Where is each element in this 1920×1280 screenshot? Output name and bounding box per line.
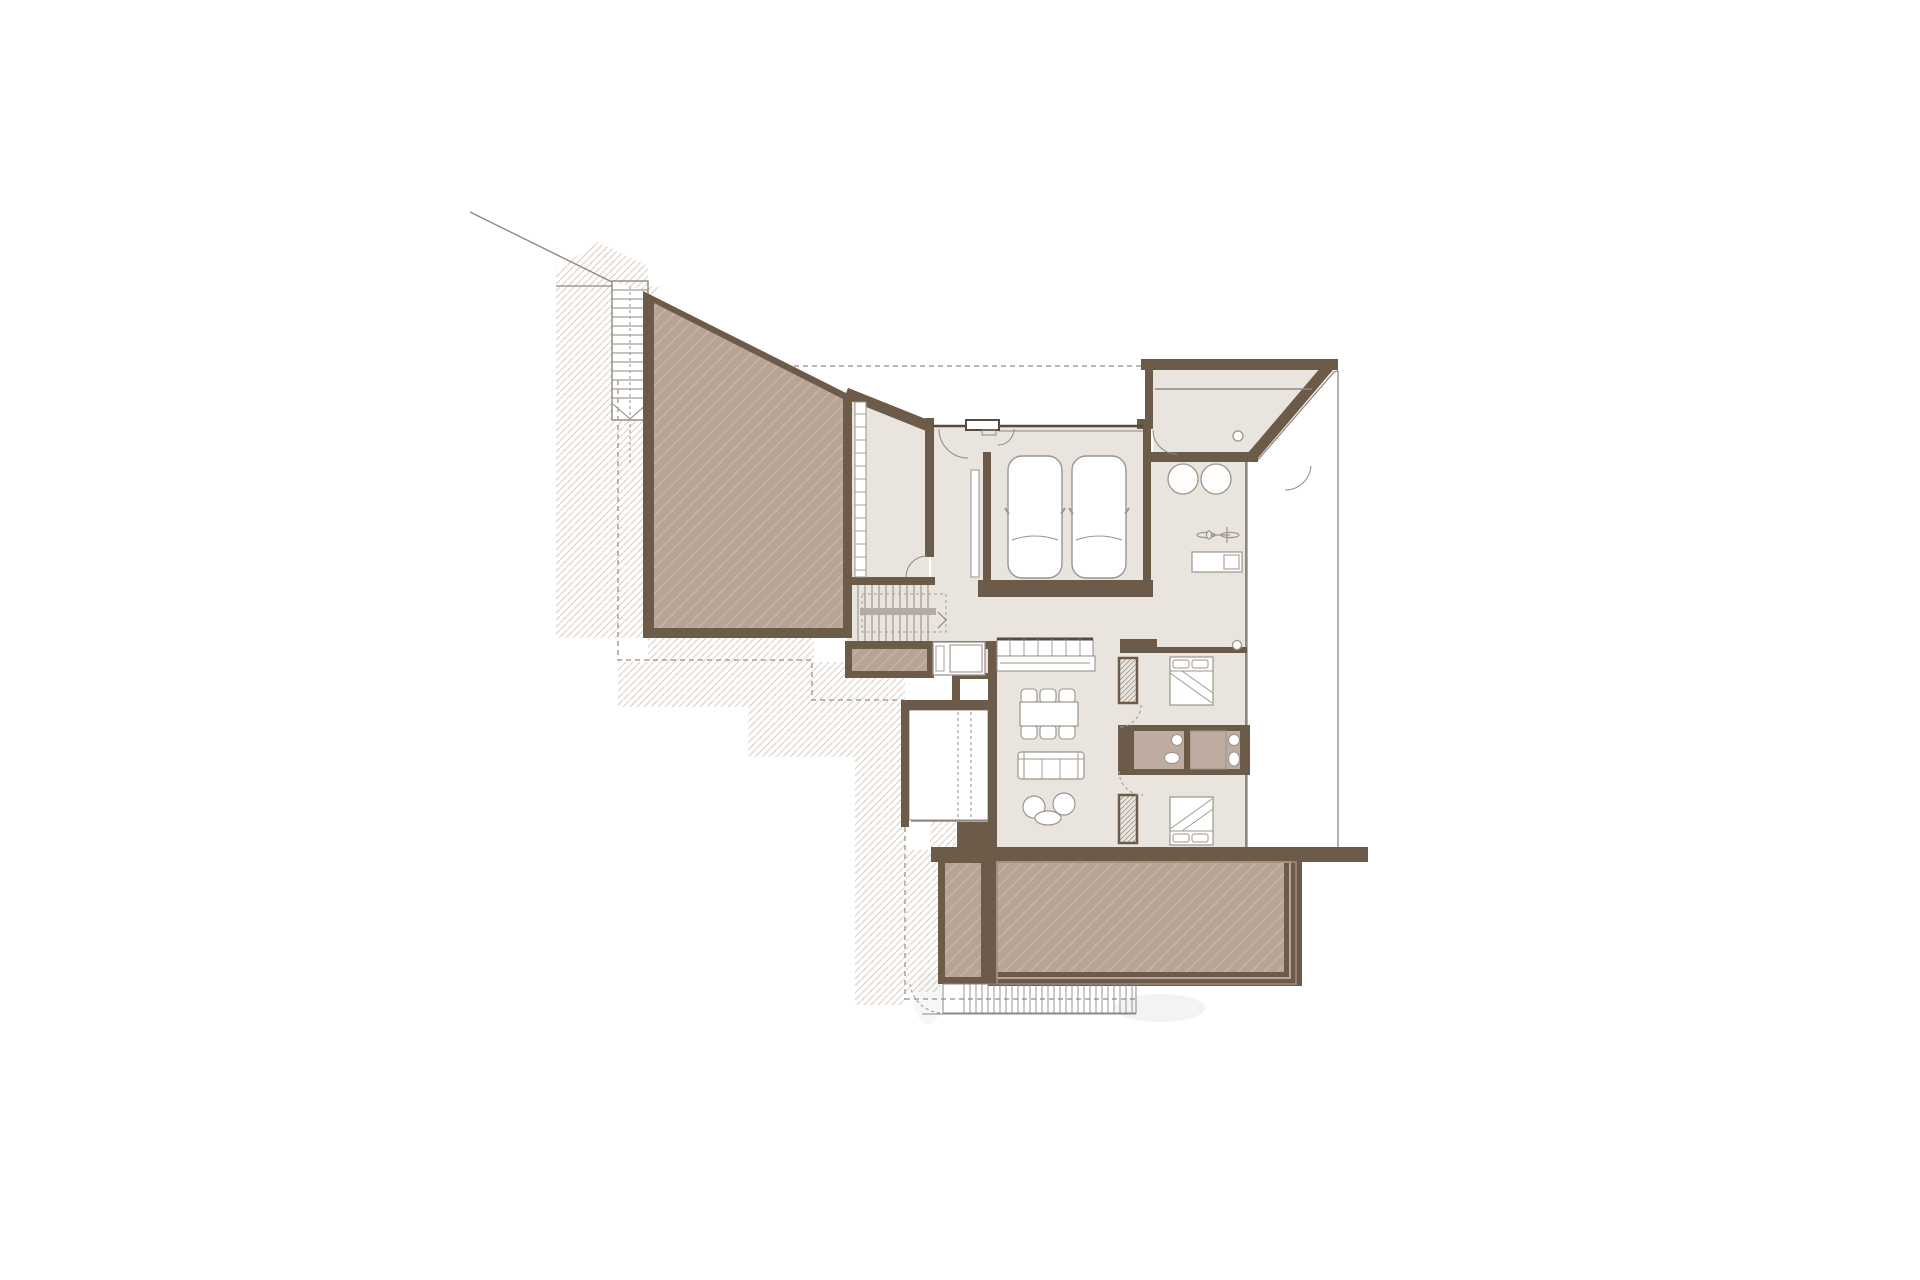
dining-table bbox=[1020, 702, 1078, 726]
stair-planter bbox=[852, 649, 927, 671]
fireplace-cabinet bbox=[933, 642, 985, 675]
lower-terrace bbox=[988, 856, 1302, 986]
column bbox=[1233, 641, 1242, 650]
car bbox=[1069, 456, 1129, 578]
vestibule-north-wall bbox=[1141, 359, 1338, 370]
column bbox=[1233, 431, 1243, 441]
bedroom2-bed bbox=[1170, 797, 1213, 845]
floor-plan-page bbox=[0, 0, 1920, 1280]
toilet bbox=[1165, 753, 1180, 764]
terrace-planter bbox=[938, 856, 988, 984]
stair-handrail bbox=[860, 608, 936, 615]
entry-threshold bbox=[966, 420, 999, 430]
sink bbox=[1172, 735, 1183, 746]
workbench bbox=[1192, 552, 1242, 572]
deck-door-swing bbox=[1285, 466, 1311, 490]
kitchen-island bbox=[997, 656, 1095, 671]
west-patio-deck bbox=[909, 710, 988, 821]
garage-south-wall bbox=[978, 580, 1153, 597]
roof-terrace bbox=[643, 291, 852, 638]
entry-pocket-door bbox=[971, 470, 979, 577]
car bbox=[1005, 456, 1065, 578]
floor-plan-drawing bbox=[0, 0, 1920, 1280]
dining-set bbox=[1020, 689, 1078, 739]
light-well bbox=[960, 679, 988, 703]
bedroom1-bed bbox=[1170, 657, 1213, 705]
garage-east-wall bbox=[1143, 420, 1151, 580]
corridor-shelving bbox=[855, 402, 866, 577]
kitchen bbox=[997, 639, 1095, 671]
stairwell-north-wall bbox=[845, 577, 935, 585]
sofa bbox=[1018, 752, 1084, 779]
entry-east-wall bbox=[983, 452, 991, 580]
kitchen-counter bbox=[997, 639, 1093, 656]
living-west-wall bbox=[988, 641, 997, 848]
corridor-east-wall bbox=[925, 418, 934, 557]
dryer bbox=[1201, 464, 1231, 494]
bathrooms bbox=[1134, 725, 1250, 775]
toilet bbox=[1229, 752, 1240, 766]
washer bbox=[1168, 464, 1198, 494]
sink bbox=[1229, 735, 1240, 746]
vestibule-south-wall bbox=[1145, 452, 1258, 462]
